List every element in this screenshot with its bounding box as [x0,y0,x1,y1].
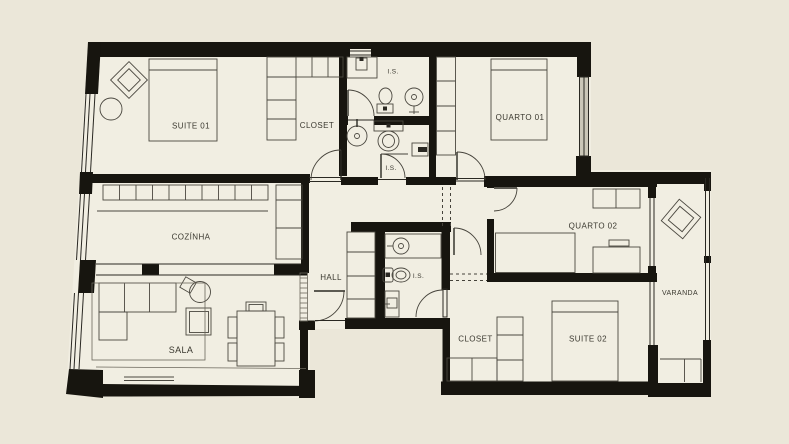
svg-text:SUITE 02: SUITE 02 [569,335,607,344]
svg-text:I.S.: I.S. [413,273,424,280]
svg-text:QUARTO 02: QUARTO 02 [569,222,618,231]
svg-text:HALL: HALL [320,273,342,282]
svg-text:VARANDA: VARANDA [662,290,698,297]
svg-text:CLOSET: CLOSET [458,335,492,344]
svg-text:COZÍNHA: COZÍNHA [172,233,211,242]
svg-text:CLOSET: CLOSET [300,121,334,130]
svg-text:I.S.: I.S. [385,165,396,172]
svg-text:I.S.: I.S. [387,69,398,76]
svg-text:QUARTO 01: QUARTO 01 [496,113,545,122]
svg-text:SUITE 01: SUITE 01 [172,122,210,131]
svg-text:SALA: SALA [169,345,194,355]
